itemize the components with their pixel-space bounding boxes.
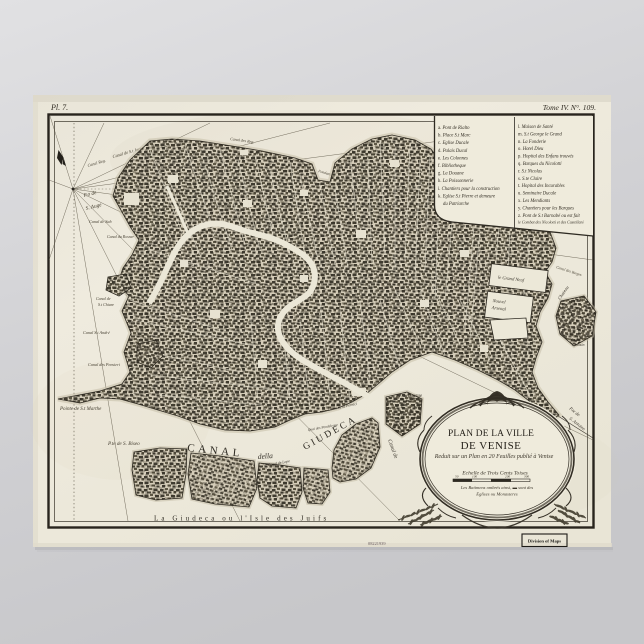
svg-text:x. Les Mendiants: x. Les Mendiants [518, 199, 550, 204]
svg-text:k. Eglise S.t Pierre et demeur: k. Eglise S.t Pierre et demeure [438, 194, 495, 199]
svg-text:Canal de: Canal de [96, 296, 111, 301]
svg-text:q. Barques du Nicolotti: q. Barques du Nicolotti [518, 162, 562, 167]
svg-text:PLAN DE LA VILLE: PLAN DE LA VILLE [448, 429, 534, 439]
svg-text:z. Pont de S.t Barnabé ou est: z. Pont de S.t Barnabé ou est fait [518, 214, 581, 219]
svg-text:r. S.t Nicolas: r. S.t Nicolas [518, 169, 542, 174]
svg-text:e. Les Colonnes: e. Les Colonnes [438, 156, 468, 161]
svg-text:100: 100 [472, 475, 477, 479]
svg-text:y. Chantiers pour les Barques: y. Chantiers pour les Barques [518, 206, 574, 211]
svg-text:s. S.te Claire: s. S.te Claire [518, 177, 542, 182]
svg-text:DE VENISE: DE VENISE [461, 440, 522, 452]
svg-text:l. Maison de Santé: l. Maison de Santé [518, 125, 554, 130]
svg-text:a. Pont de Rialto: a. Pont de Rialto [438, 126, 470, 131]
svg-text:Canal S.t André: Canal S.t André [83, 330, 111, 335]
svg-text:Chiosin: Chiosin [572, 342, 584, 347]
svg-text:t. Hopital des Incurables: t. Hopital des Incurables [518, 184, 565, 189]
svg-text:300: 300 [524, 475, 529, 479]
svg-text:08221939: 08221939 [368, 541, 386, 546]
svg-text:S.t Chiare: S.t Chiare [98, 302, 114, 307]
svg-text:Tome IV. N°. 109.: Tome IV. N°. 109. [543, 103, 596, 112]
svg-text:200: 200 [505, 475, 510, 479]
svg-text:o. Hotel Dieu: o. Hotel Dieu [518, 147, 544, 152]
svg-text:Eglises ou Monasteres: Eglises ou Monasteres [475, 492, 518, 497]
svg-text:g. La Douane: g. La Douane [438, 172, 464, 177]
svg-text:le Combat des Nicolotti et des: le Combat des Nicolotti et des Castellan… [518, 219, 584, 224]
svg-text:Canal du Rosner: Canal du Rosner [107, 234, 135, 239]
svg-text:p. Hopital des Enfans trouvés: p. Hopital des Enfans trouvés [518, 155, 574, 160]
svg-text:Pl. 7.: Pl. 7. [50, 103, 68, 112]
svg-text:Division of Maps: Division of Maps [528, 539, 561, 544]
svg-text:du Patriarche: du Patriarche [443, 202, 469, 207]
svg-text:Pointe de S.t Marthe: Pointe de S.t Marthe [59, 407, 102, 412]
svg-text:c. Eglise Ducale: c. Eglise Ducale [438, 141, 469, 146]
svg-text:della: della [258, 451, 274, 461]
svg-text:h. La Poissonnerie: h. La Poissonnerie [438, 179, 473, 184]
svg-text:Canal de Sab: Canal de Sab [89, 219, 112, 224]
svg-text:i. Chantiers pour la construct: i. Chantiers pour la construction [438, 187, 500, 192]
svg-text:f. Bibliotheque: f. Bibliotheque [438, 164, 466, 169]
svg-text:m. S.t George le Grand: m. S.t George le Grand [518, 132, 562, 137]
svg-text:b. Place S.t Marc: b. Place S.t Marc [438, 134, 471, 139]
svg-text:La Giudeca ou l'Isle des: La Giudeca ou l'Isle des Juifs [154, 515, 329, 523]
svg-text:n. La Fonderie: n. La Fonderie [518, 140, 546, 145]
svg-text:Canal des Pensieri: Canal des Pensieri [88, 362, 121, 367]
svg-text:P.te de S. Biseo: P.te de S. Biseo [107, 441, 140, 447]
svg-text:Reduit sur un Plan en 20 Feuil: Reduit sur un Plan en 20 Feuilles publié… [434, 454, 554, 460]
svg-text:d. Palais Ducal: d. Palais Ducal [438, 149, 468, 154]
svg-text:I. S. George: I. S. George [398, 394, 423, 399]
svg-text:50: 50 [455, 475, 459, 479]
svg-text:u. Seminaire Ducale: u. Seminaire Ducale [518, 192, 556, 197]
